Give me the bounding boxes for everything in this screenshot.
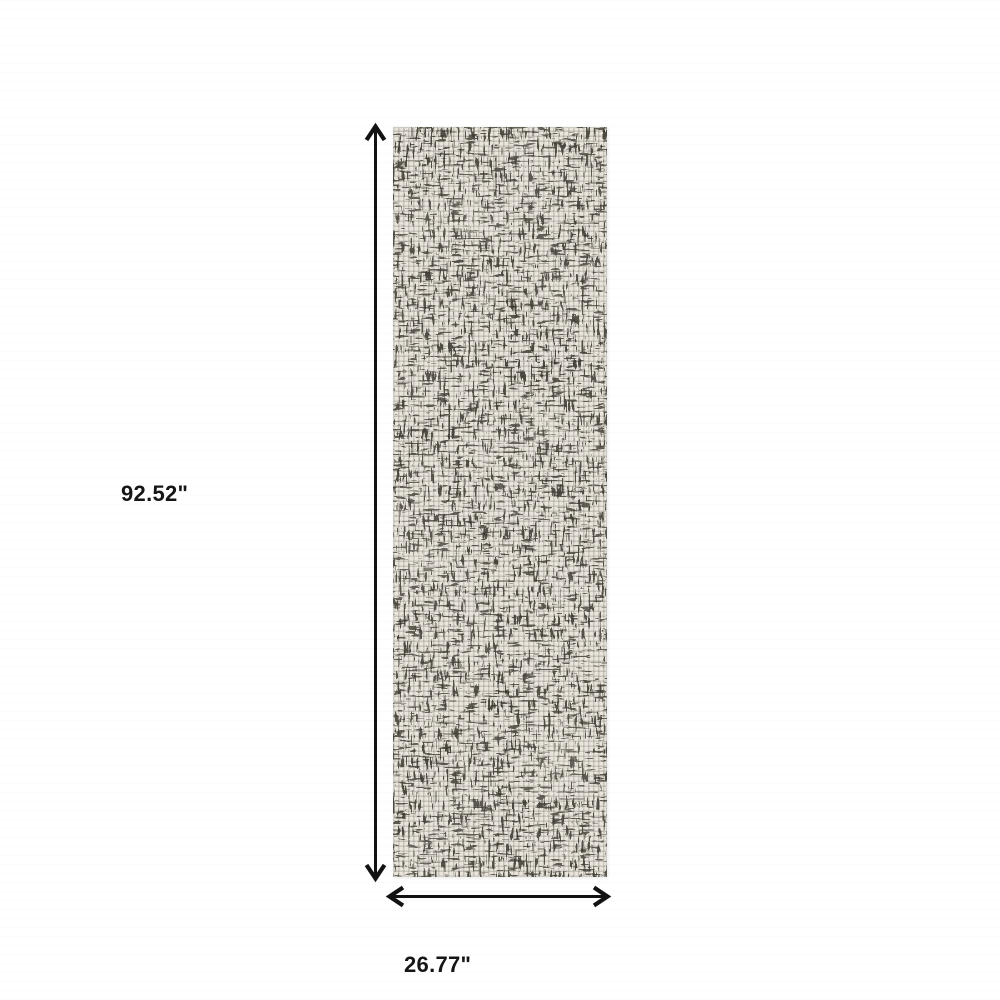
height-dimension-label: 92.52" bbox=[121, 481, 188, 507]
product-dimension-diagram: 92.52" 26.77" bbox=[0, 0, 1000, 1000]
rug-runner-photo bbox=[393, 127, 607, 877]
width-dimension-label: 26.77" bbox=[404, 952, 471, 978]
double-arrow-horizontal-icon bbox=[390, 888, 608, 906]
double-arrow-vertical-icon bbox=[367, 127, 385, 879]
rug-texture bbox=[393, 127, 607, 877]
